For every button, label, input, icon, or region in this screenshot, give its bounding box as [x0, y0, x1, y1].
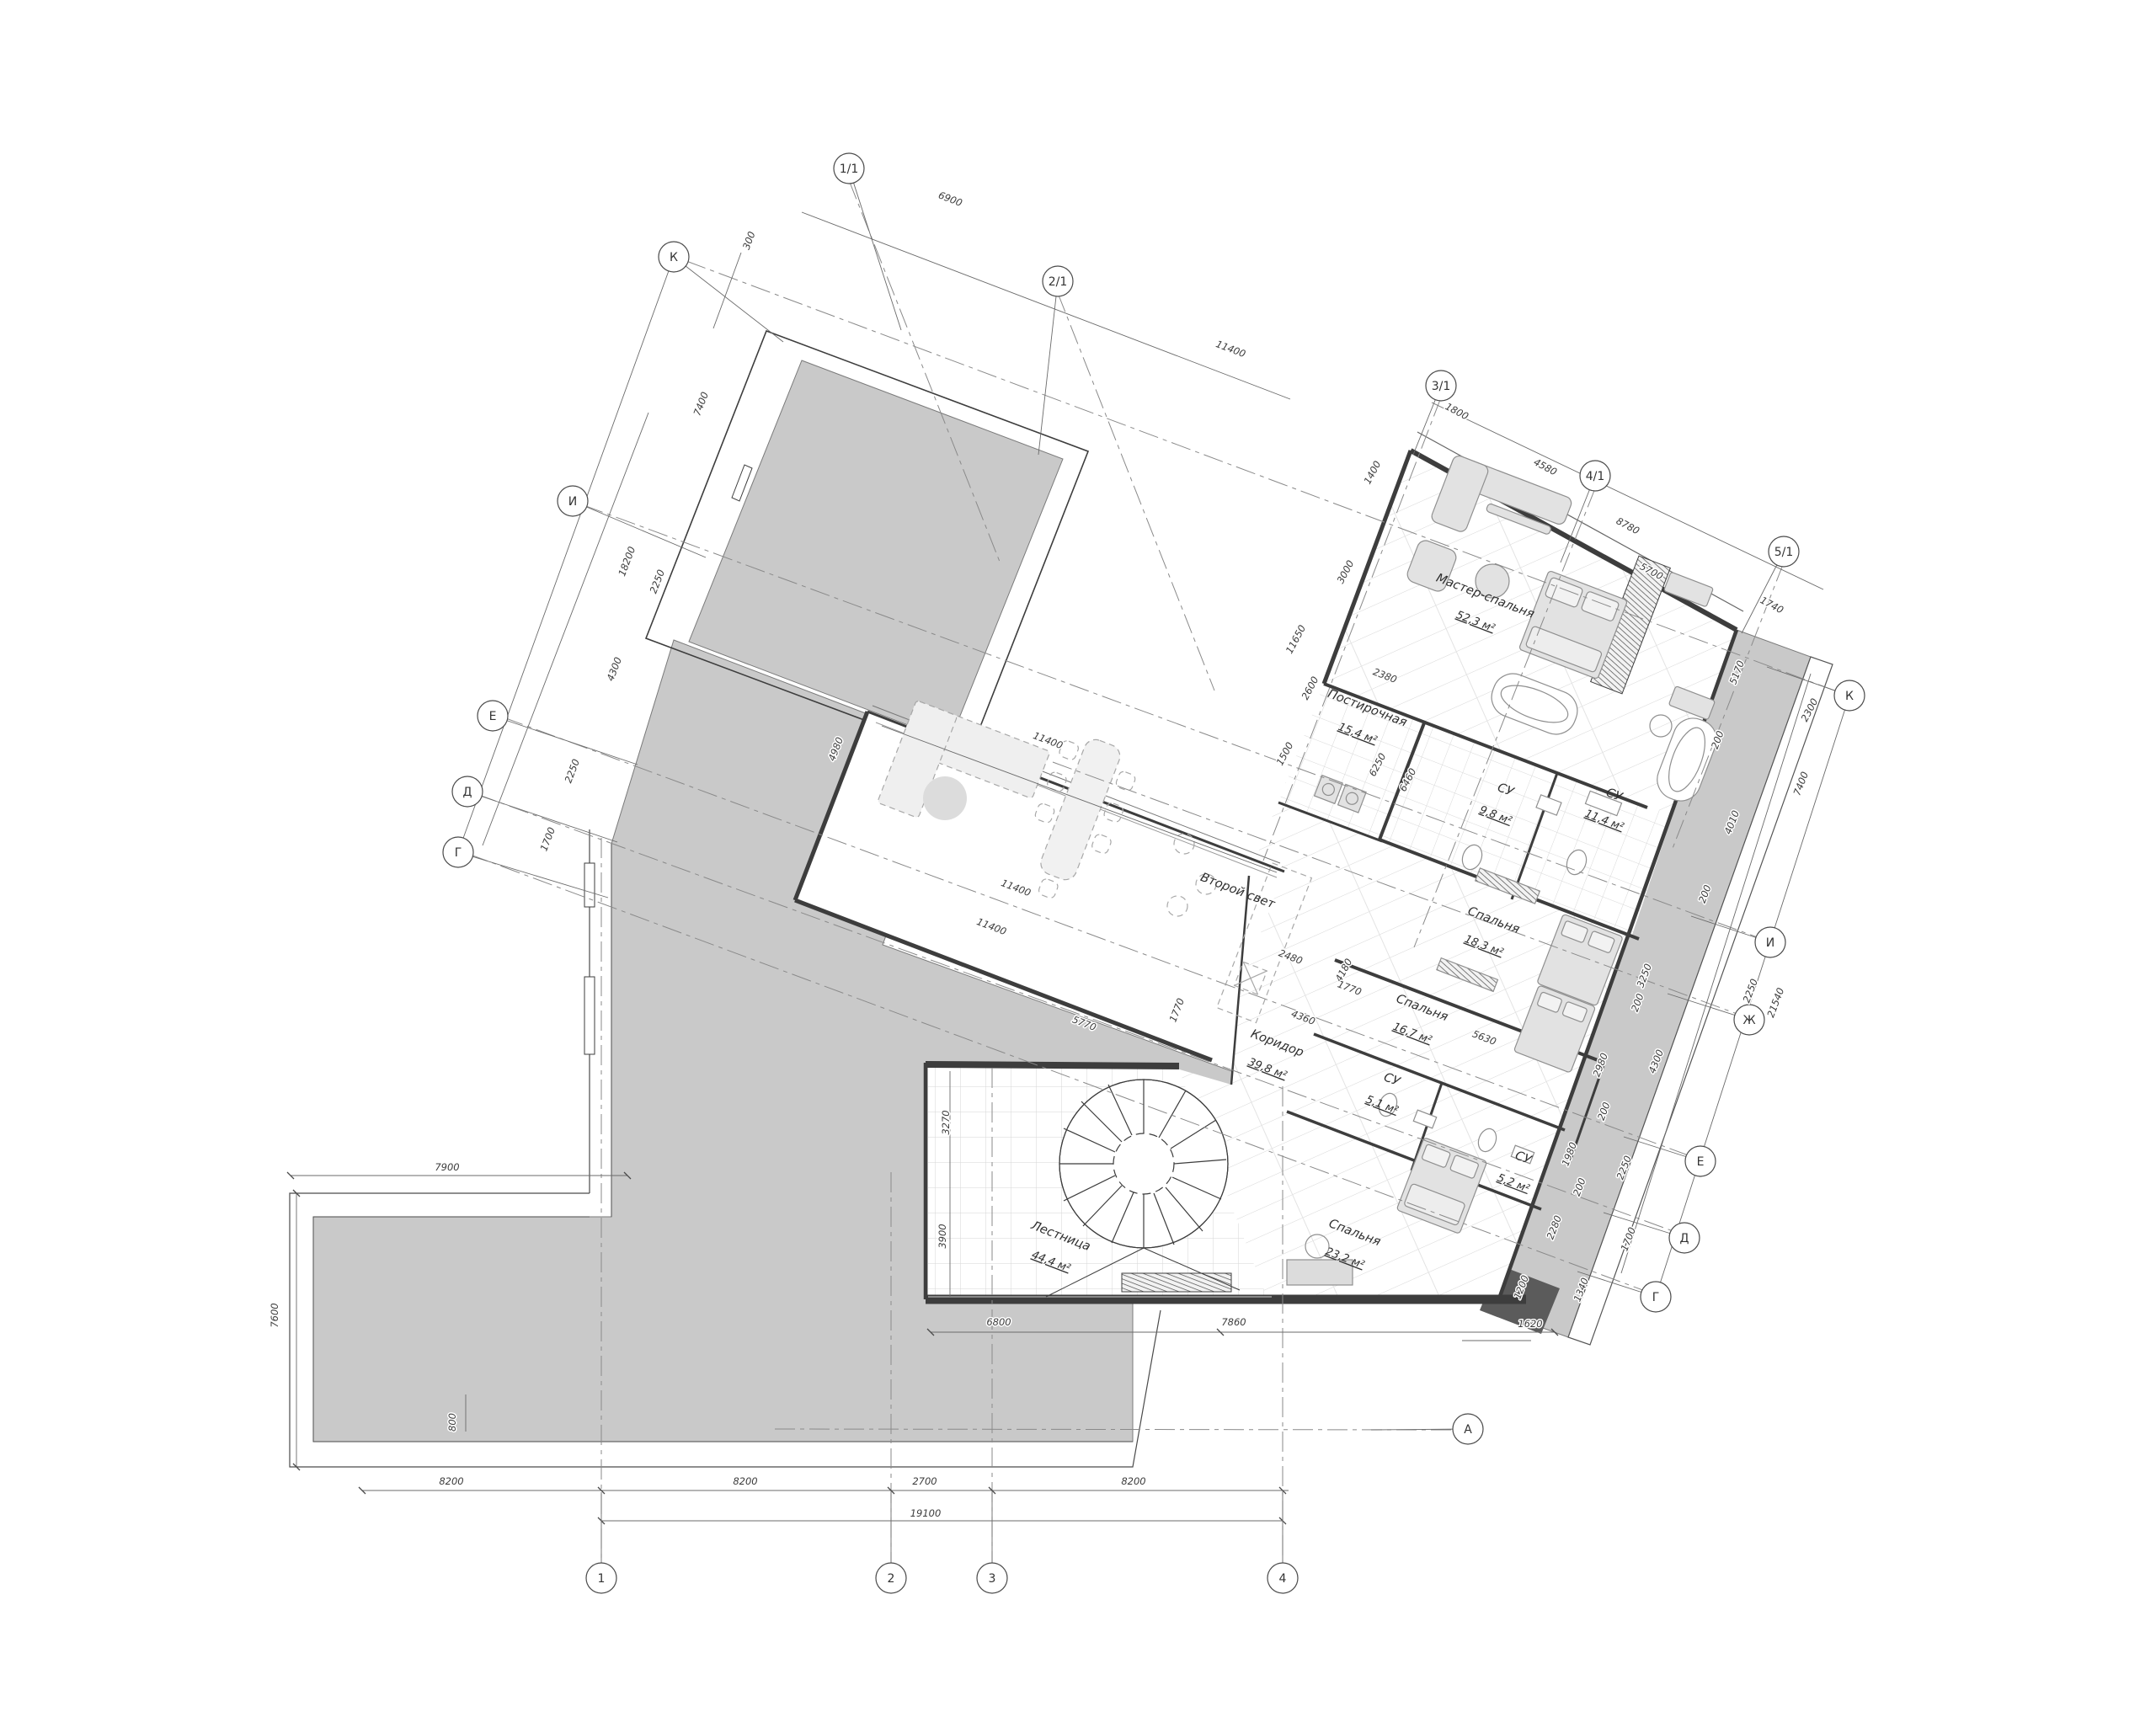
dimension-label: 6900: [937, 189, 963, 209]
dimension-label: 7860: [1221, 1316, 1246, 1328]
axis-leader-line: [849, 168, 901, 330]
axis-leader-line: [573, 501, 706, 557]
axis-bubble-label: 3: [989, 1572, 996, 1586]
dimension-label: 1800: [1444, 400, 1470, 422]
axis-bubble-label: 5/1: [1774, 546, 1794, 559]
axis-bubble-3: 3: [977, 1492, 1007, 1593]
axis-bubble-label: 1: [598, 1572, 606, 1586]
dimension-label: 19100: [910, 1507, 942, 1519]
roof-west-south: [313, 640, 1273, 1442]
dimension-label: 2250: [562, 757, 582, 784]
dimension-label: 21540: [1764, 986, 1786, 1019]
axis-bubble-label: Г: [1652, 1291, 1660, 1304]
dimension-label: 800: [446, 1413, 458, 1432]
dimension-label: 4300: [604, 655, 624, 682]
axis-bubble-label: Е: [489, 710, 497, 723]
axis-bubble-1/1: 1/1: [834, 153, 901, 330]
dimension-label: 2700: [912, 1475, 937, 1487]
axis-bubble-label: К: [670, 251, 678, 264]
dimension-label: 1740: [1758, 594, 1785, 616]
axis-bubble-label: Ж: [1742, 1014, 1755, 1027]
dimension-label: 2600: [1299, 675, 1321, 701]
axis-leader-line: [674, 257, 783, 342]
dimension-label: 3000: [1334, 558, 1356, 585]
axis-bubble-label: Д: [1680, 1232, 1689, 1245]
axis-bubble-label: 1/1: [840, 163, 859, 176]
dimension-label: 11650: [1283, 623, 1309, 656]
axis-bubble-label: К: [1845, 690, 1854, 703]
axis-bubble-1: 1: [586, 1492, 616, 1593]
axis-bubble-К: К: [659, 242, 783, 342]
dimension-label: 8200: [439, 1475, 463, 1487]
dimension-label: 300: [740, 230, 758, 252]
axis-bubble-Г: Г: [443, 837, 608, 898]
dimension-label: 7400: [691, 390, 711, 417]
dimension-label: 8200: [1121, 1475, 1145, 1487]
axis-bubble-5/1: 5/1: [1742, 536, 1799, 633]
axis-bubble-label: 2/1: [1049, 275, 1068, 289]
dimension-label: 2250: [1740, 977, 1760, 1004]
axis-bubble-label: Е: [1697, 1155, 1705, 1169]
dimension-label: 3270: [940, 1110, 952, 1134]
dimension-label: 18200: [616, 545, 638, 578]
floor-plan-drawing: 1/12/13/14/15/1КИЕДГКИЖЕДГА1234 69003001…: [0, 0, 2156, 1733]
axis-leader-line: [1038, 281, 1058, 455]
dimension-label: 1500: [1273, 740, 1295, 767]
dimension-label: 1620: [1518, 1318, 1542, 1330]
axis-leader-line: [493, 716, 638, 765]
window-hatch-bottom: [1122, 1273, 1231, 1292]
dimension-label: 8200: [733, 1475, 757, 1487]
axis-bubble-label: И: [1766, 936, 1774, 950]
dimension-label: 6800: [986, 1316, 1011, 1328]
axis-bubble-2: 2: [876, 1492, 906, 1593]
axis-bubble-А: А: [1371, 1414, 1483, 1444]
dimension-label: 7600: [269, 1303, 280, 1327]
west-window-slit-2: [584, 977, 595, 1054]
axis-bubble-label: Д: [463, 786, 472, 799]
axis-bubble-label: 2: [888, 1572, 895, 1586]
axis-bubble-2/1: 2/1: [1038, 266, 1073, 455]
axis-bubble-label: 4/1: [1586, 470, 1605, 483]
axis-bubble-label: А: [1464, 1423, 1472, 1437]
west-window-slit-1: [584, 863, 595, 907]
axis-bubble-Д: Д: [452, 776, 617, 842]
axis-bubble-label: Г: [455, 846, 462, 860]
axis-bubble-4: 4: [1267, 1492, 1298, 1593]
dimension-label: 3900: [937, 1224, 948, 1248]
dimension-label: 11400: [1214, 338, 1247, 360]
dimension-label: 8780: [1614, 515, 1641, 536]
dimension-label: 1700: [537, 825, 558, 852]
axis-bubble-label: 4: [1279, 1572, 1287, 1586]
axis-bubble-label: И: [568, 495, 577, 509]
dimension-label: 4580: [1532, 456, 1559, 477]
floor-plan-canvas: 1/12/13/14/15/1КИЕДГКИЖЕДГА1234 69003001…: [0, 0, 2156, 1733]
dimension-label: 1400: [1361, 459, 1383, 486]
axis-bubble-label: 3/1: [1432, 380, 1451, 393]
dimension-label: 7900: [435, 1161, 459, 1173]
